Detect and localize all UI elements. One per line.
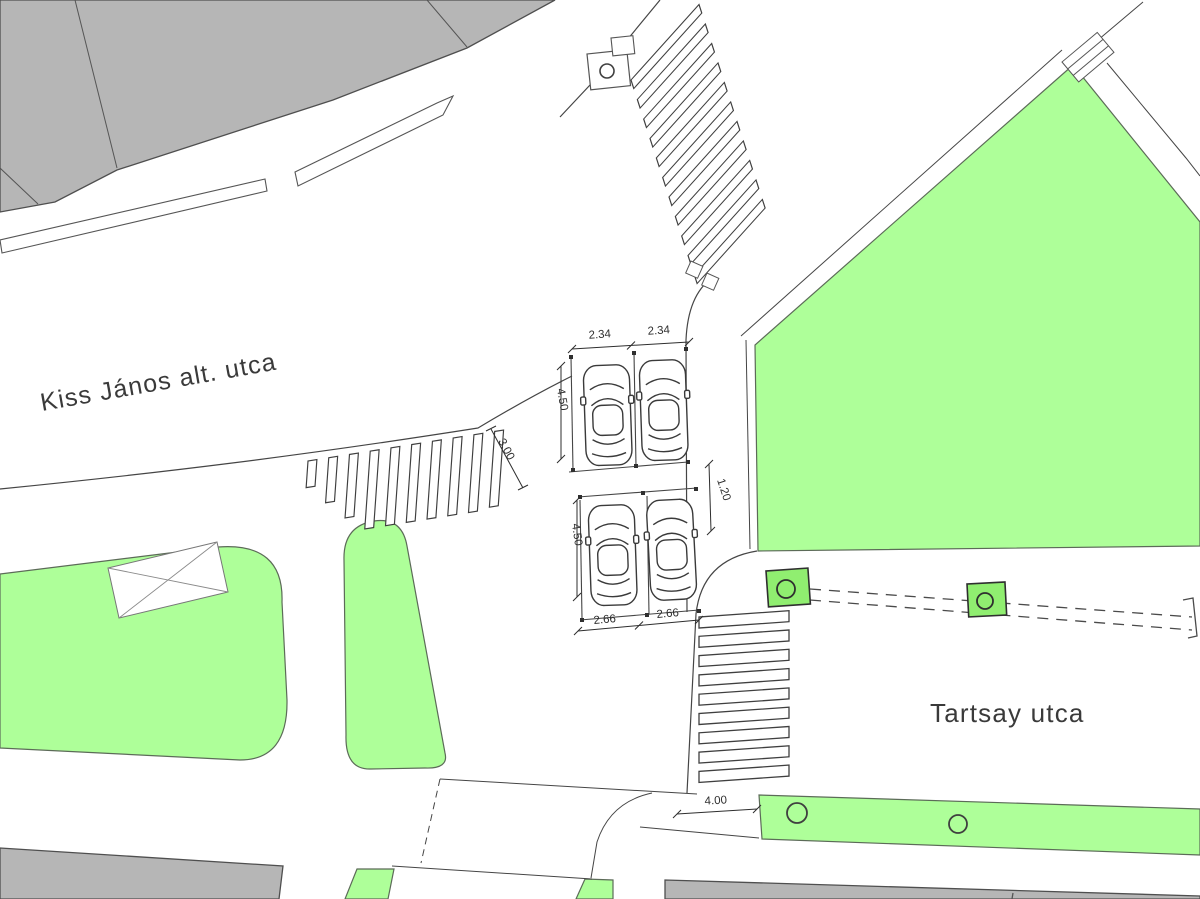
car-top-view [580,364,636,466]
car-top-view [636,359,692,461]
zebra-stripe [306,460,317,488]
dim-label: 2.66 [593,613,616,627]
site-plan-canvas: 2.34 2.34 4.50 3.00 4.50 1.20 2.66 2.6 [0,0,1200,899]
car-top-view [585,504,641,606]
dim-label: 2.34 [647,324,671,338]
signal-pole-step [611,36,635,56]
car-top-view [643,498,701,601]
tree-square [967,582,1007,617]
tree-square [766,568,810,607]
dim-label: 2.66 [656,607,679,621]
dim-label: 2.34 [588,328,612,342]
crosswalk-tartsay [699,611,789,783]
site-plan-page: 2.34 2.34 4.50 3.00 4.50 1.20 2.66 2.6 [0,0,1200,899]
dim-label: 4.00 [704,794,727,807]
signal-pole-base [587,50,631,90]
street-label-tartsay: Tartsay utca [930,698,1085,728]
